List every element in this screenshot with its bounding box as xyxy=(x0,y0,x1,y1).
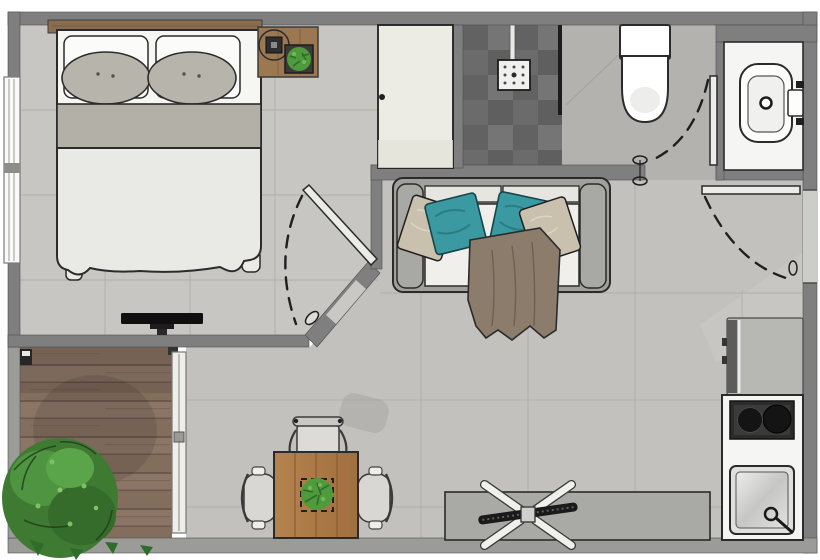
wall-left-mid xyxy=(8,263,20,347)
window xyxy=(4,77,20,263)
vanity xyxy=(724,42,804,170)
kitchenette xyxy=(722,318,803,540)
floor-plan-svg xyxy=(0,0,820,560)
accent-pillow-right xyxy=(148,52,236,104)
wardrobe xyxy=(378,25,453,168)
toilet-tank xyxy=(620,25,670,59)
shower-pipe xyxy=(510,25,515,65)
accent-pillow-left xyxy=(62,52,150,104)
small-potted-plant xyxy=(287,47,311,71)
wall-shower-left xyxy=(453,25,463,168)
bathroom-door-leaf xyxy=(710,76,717,165)
sofa-arm-right xyxy=(580,184,606,288)
balcony-shade-top xyxy=(20,347,172,393)
wardrobe-handle xyxy=(379,94,385,100)
wall-left-upper xyxy=(8,12,20,77)
sink-basin xyxy=(736,472,788,528)
dining-chair-right xyxy=(358,467,392,529)
wall-vanity-top xyxy=(716,25,817,42)
basin-faucet xyxy=(788,90,803,116)
slider-handle xyxy=(174,432,184,442)
entry-opening xyxy=(803,190,817,283)
folded-blanket xyxy=(57,104,261,148)
dining-chair-top xyxy=(290,417,347,456)
fan-hub xyxy=(521,507,535,522)
burner-right xyxy=(763,405,791,433)
shower-glass-partition xyxy=(558,25,562,115)
toilet xyxy=(620,25,670,122)
fridge-door-edge xyxy=(727,320,737,393)
bathroom-door-threshold xyxy=(645,165,716,180)
nightstand xyxy=(258,27,318,77)
entrance-door-leaf xyxy=(702,186,800,194)
window-mullion xyxy=(4,163,20,173)
floor-plan-image xyxy=(0,0,820,560)
dining-chair-left xyxy=(242,467,276,529)
basin-drain xyxy=(761,98,772,109)
double-bed xyxy=(48,20,262,280)
duvet xyxy=(57,148,261,275)
wall-bedroom-south xyxy=(8,335,309,347)
